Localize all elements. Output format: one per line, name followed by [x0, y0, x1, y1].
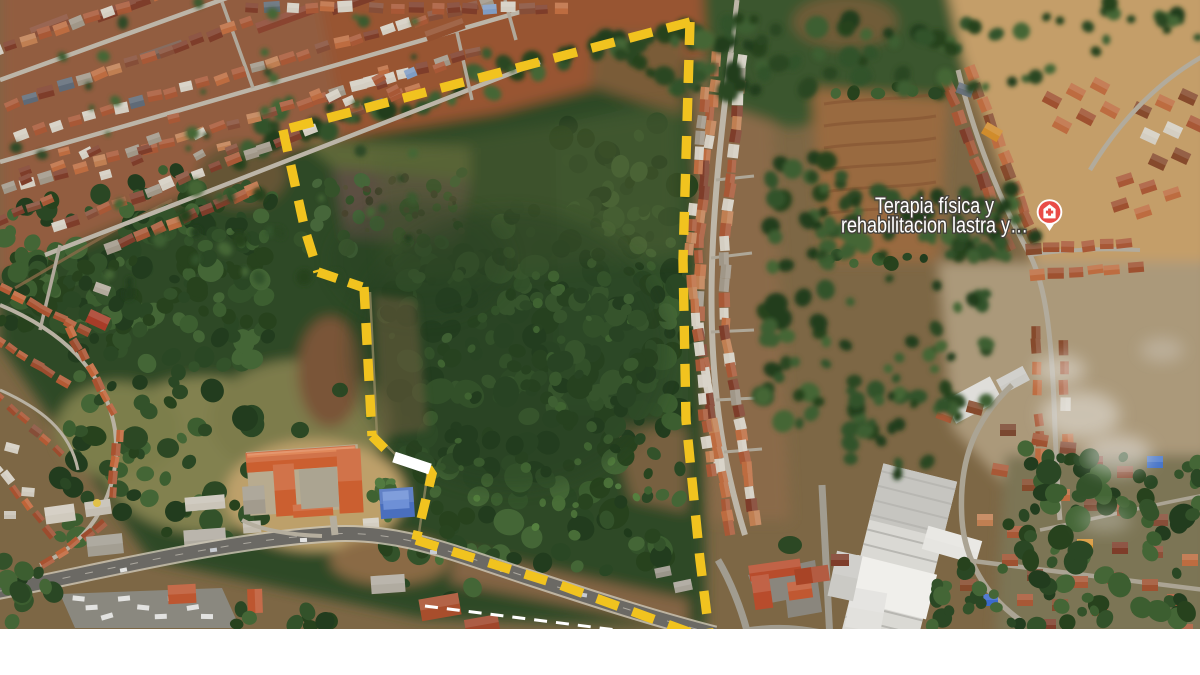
svg-text:rehabilitacion lastra y…: rehabilitacion lastra y… — [841, 213, 1028, 238]
